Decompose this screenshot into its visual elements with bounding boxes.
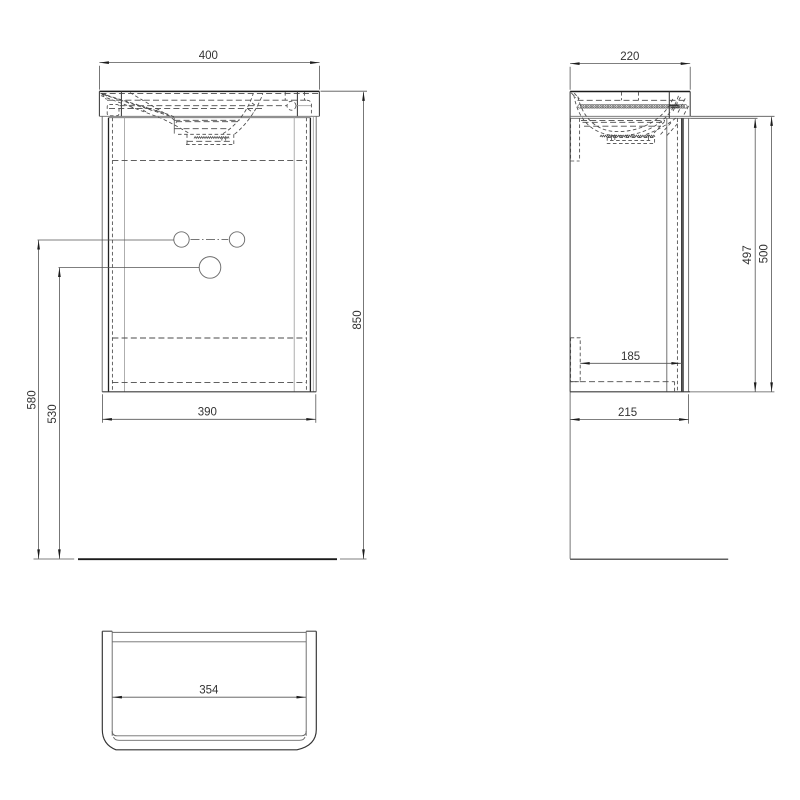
svg-text:850: 850: [352, 310, 364, 329]
svg-text:354: 354: [199, 684, 219, 696]
svg-text:220: 220: [620, 51, 639, 63]
svg-text:530: 530: [47, 404, 59, 423]
svg-text:400: 400: [199, 50, 218, 62]
svg-text:390: 390: [198, 407, 217, 419]
svg-text:580: 580: [27, 390, 39, 409]
svg-text:500: 500: [758, 244, 770, 263]
svg-text:185: 185: [621, 351, 640, 363]
svg-text:497: 497: [742, 245, 754, 264]
svg-text:215: 215: [618, 407, 637, 419]
